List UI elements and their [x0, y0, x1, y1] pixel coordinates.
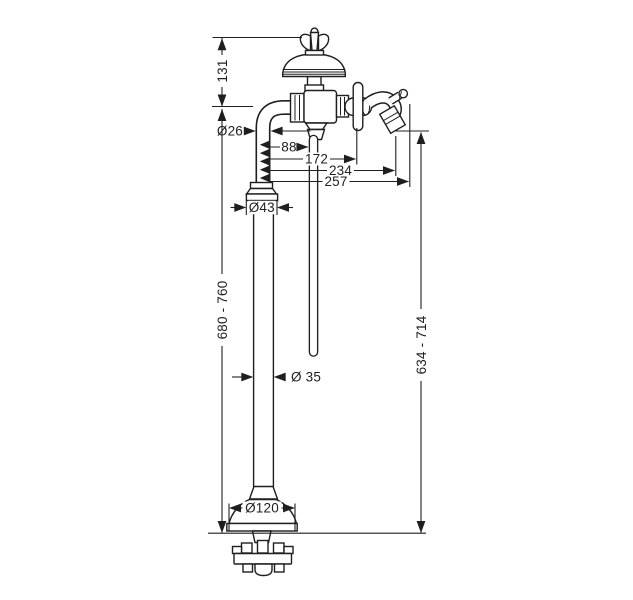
- dimensional-drawing: 131 680 - 760 634 - 714 Ø26: [0, 0, 633, 600]
- valve-body: [291, 91, 349, 140]
- dim-label-o43: Ø43: [249, 200, 275, 215]
- dim-label-257: 257: [324, 174, 347, 189]
- dim-label-634-714: 634 - 714: [414, 315, 429, 374]
- dim-label-o35: Ø 35: [291, 370, 321, 385]
- faucet-artwork: [227, 28, 408, 575]
- dim-collar-diameter-43: Ø43: [231, 200, 294, 215]
- diverter-dome: [283, 54, 346, 92]
- dim-label-131: 131: [215, 59, 230, 82]
- dim-overall-height-680-760: 680 - 760: [215, 109, 230, 533]
- dim-label-o26: Ø26: [217, 123, 243, 138]
- technical-drawing-canvas: 131 680 - 760 634 - 714 Ø26: [0, 0, 633, 600]
- diverter-knob: [300, 28, 328, 55]
- hose-nipple: [391, 89, 408, 101]
- dim-outlet-height-634-714: 634 - 714: [395, 131, 429, 533]
- dim-label-88: 88: [281, 140, 296, 155]
- dim-label-680-760: 680 - 760: [215, 281, 230, 340]
- spout: [368, 89, 407, 133]
- dim-label-172: 172: [305, 152, 328, 167]
- floor-mounting-flange: [233, 531, 294, 576]
- cross-handle: [345, 83, 372, 131]
- dim-label-o120: Ø120: [245, 500, 279, 515]
- column-collar: [246, 183, 277, 201]
- dim-dip-tube-offset-88: 88: [271, 140, 309, 155]
- column-base-flare: [250, 487, 278, 500]
- dim-column-diameter-35: Ø 35: [232, 370, 321, 385]
- main-column: [254, 200, 274, 488]
